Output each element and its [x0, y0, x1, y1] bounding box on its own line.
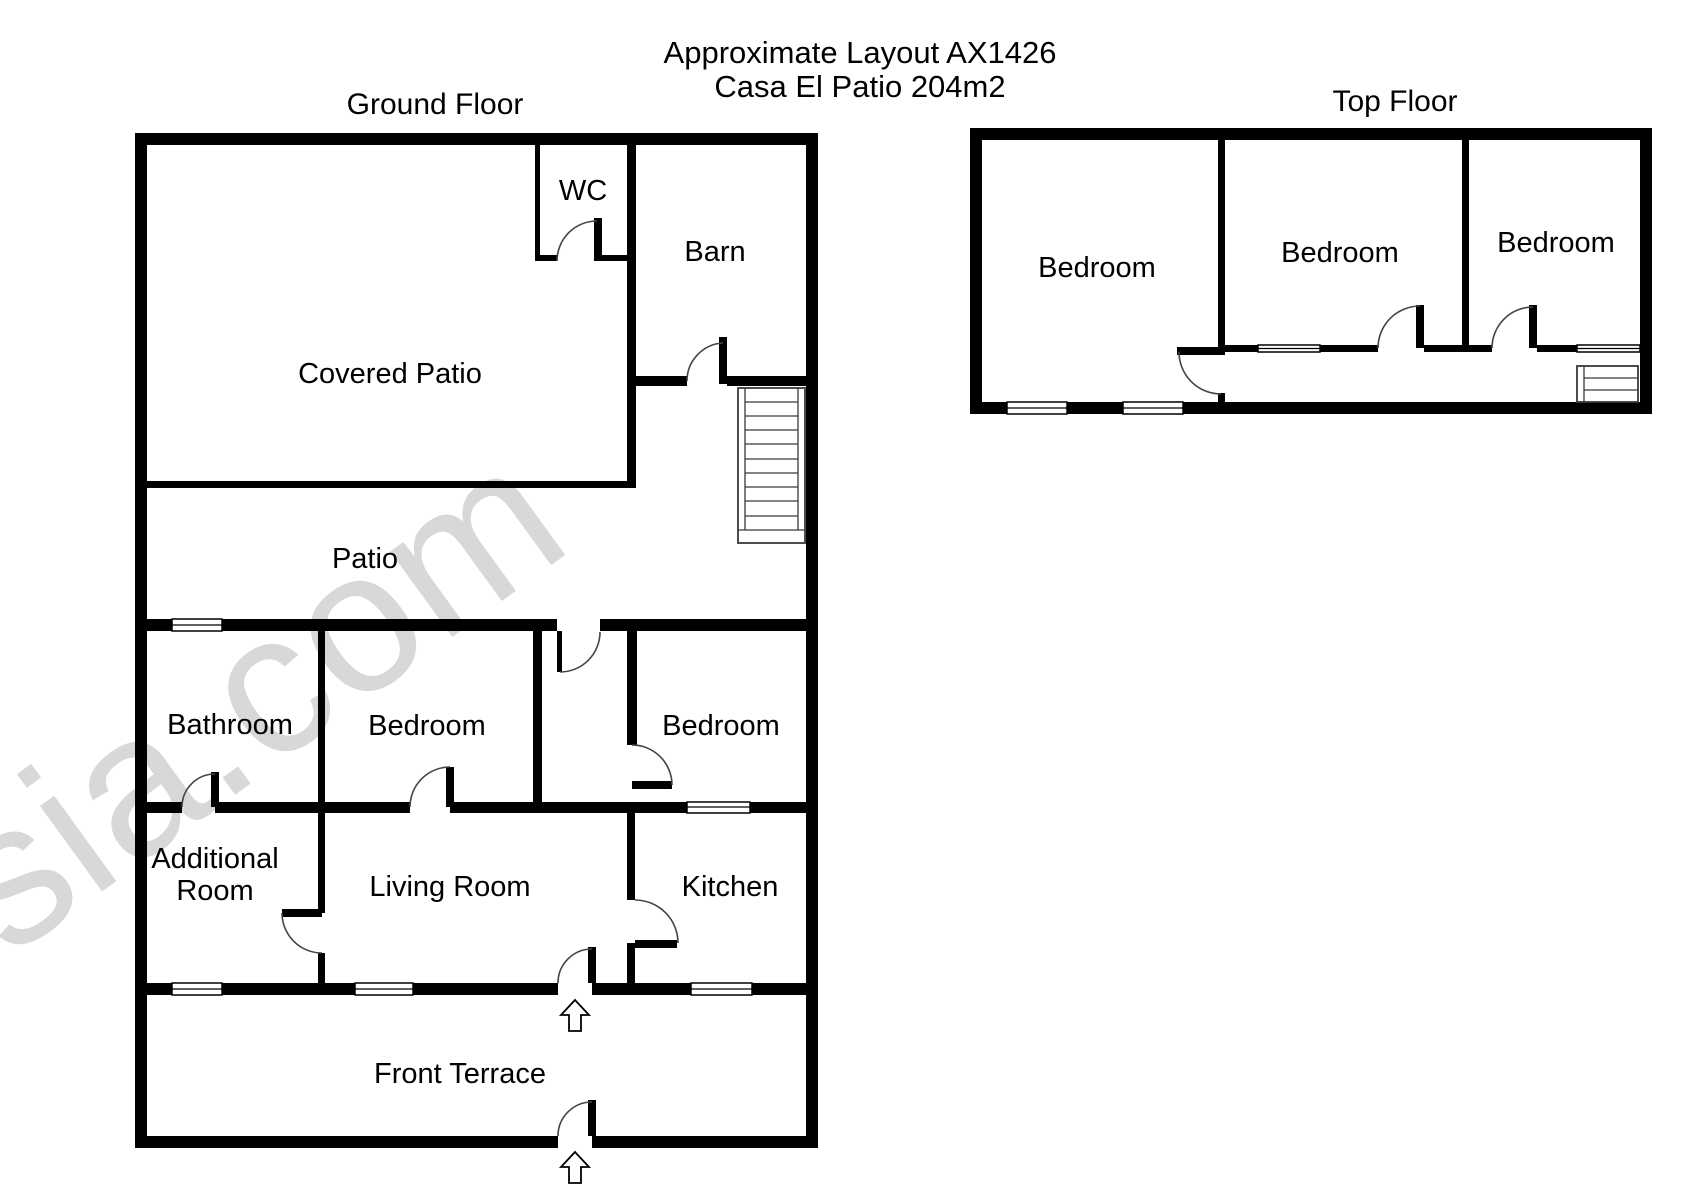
wall-segment: [636, 376, 687, 386]
room-label-patio: Patio: [332, 543, 398, 575]
terrace-entrance-arrow-icon: [561, 1000, 589, 1031]
wall-segment: [318, 953, 325, 983]
wall-segment: [147, 802, 182, 813]
top-floor-plan: Top Floor: [970, 85, 1652, 414]
ground-floor-title: Ground Floor: [347, 88, 524, 121]
room-label-bathroom: Bathroom: [167, 709, 293, 741]
door-leaf: [1529, 305, 1537, 348]
top-floor-inner-walls: [1177, 140, 1577, 402]
room-label-bedroom-1: Bedroom: [368, 710, 486, 742]
wall-segment: [222, 983, 355, 995]
door-leaf: [446, 767, 454, 807]
ground-floor-staircase: [738, 388, 805, 543]
wall-segment: [970, 128, 982, 414]
bedroom1-door-arc: [410, 767, 450, 807]
top-bedroom1-door-arc: [1179, 352, 1221, 394]
patio-hall-door-arc: [560, 632, 600, 672]
door-leaf: [635, 940, 677, 948]
wall-segment: [600, 619, 818, 631]
top-bedroom3-door-arc: [1492, 307, 1533, 348]
room-label-top-bedroom-3: Bedroom: [1497, 227, 1615, 259]
door-leaf: [632, 781, 672, 789]
window: [1123, 402, 1183, 414]
wall-segment: [535, 255, 557, 261]
wall-segment: [1320, 345, 1378, 352]
room-label-top-bedroom-2: Bedroom: [1281, 237, 1399, 269]
floorplan-canvas: unspoiltandalusia.com Approximate Layout…: [0, 0, 1696, 1200]
page-title-line2: Casa El Patio 204m2: [714, 69, 1005, 104]
wall-segment: [450, 802, 687, 813]
wall-segment: [970, 128, 1652, 140]
wall-segment: [318, 631, 325, 812]
wall-segment: [318, 813, 325, 913]
door-leaf: [211, 772, 219, 807]
room-label-kitchen: Kitchen: [682, 871, 779, 903]
wall-segment: [627, 631, 637, 745]
wall-segment: [752, 983, 818, 995]
window: [1577, 345, 1640, 352]
wall-segment: [1469, 345, 1492, 352]
additional-room-door-arc: [282, 913, 322, 953]
wall-segment: [135, 133, 147, 1148]
wall-segment: [135, 983, 172, 995]
wall-segment: [222, 619, 557, 631]
wall-segment: [1183, 402, 1652, 414]
entrance-door-arc: [558, 1102, 592, 1136]
wall-segment: [1067, 402, 1123, 414]
room-label-additional-room-line1: Additional: [151, 843, 278, 875]
window: [687, 802, 750, 813]
bedroom2-door-arc: [632, 745, 672, 785]
wall-segment: [1462, 140, 1469, 352]
room-label-barn: Barn: [684, 236, 745, 268]
wall-segment: [1640, 128, 1652, 414]
wall-segment: [627, 145, 636, 488]
room-label-living-room: Living Room: [369, 871, 530, 903]
wall-segment: [147, 481, 627, 488]
door-leaf: [557, 631, 562, 672]
top-floor-staircase: [1577, 366, 1638, 402]
wall-segment: [627, 813, 635, 900]
wall-segment: [413, 983, 558, 995]
door-leaf: [588, 947, 596, 983]
wall-segment: [135, 133, 818, 145]
window: [1258, 345, 1320, 352]
room-label-wc: WC: [559, 175, 607, 207]
door-leaf: [719, 337, 727, 384]
wall-segment: [215, 802, 410, 813]
wall-segment: [627, 943, 635, 983]
room-label-bedroom-2: Bedroom: [662, 710, 780, 742]
barn-door-arc: [687, 343, 723, 381]
door-leaf: [1416, 305, 1424, 348]
floorplan-page: unspoiltandalusia.com Approximate Layout…: [0, 0, 1696, 1200]
door-leaf: [588, 1100, 596, 1136]
room-label-top-bedroom-1: Bedroom: [1038, 252, 1156, 284]
page-title-line1: Approximate Layout AX1426: [664, 35, 1057, 70]
main-entrance-arrow-icon: [561, 1152, 589, 1183]
window: [691, 983, 752, 995]
wall-segment: [135, 1136, 558, 1148]
window: [172, 983, 222, 995]
wall-segment: [592, 983, 691, 995]
top-floor-title: Top Floor: [1332, 85, 1457, 118]
door-leaf: [594, 218, 602, 261]
wall-segment: [1218, 140, 1225, 355]
wall-segment: [592, 1136, 818, 1148]
wall-segment: [535, 145, 540, 257]
wall-segment: [727, 376, 806, 386]
window: [1007, 402, 1067, 414]
wall-segment: [602, 255, 627, 261]
door-leaf: [1177, 347, 1221, 355]
wall-segment: [1424, 345, 1462, 352]
top-bedroom2-door-arc: [1378, 306, 1420, 348]
terrace-door-arc: [558, 949, 592, 983]
wall-segment: [135, 619, 172, 631]
window: [172, 619, 222, 631]
wall-segment: [533, 631, 542, 812]
wall-segment: [806, 133, 818, 1148]
door-leaf: [282, 909, 322, 917]
wall-segment: [1225, 345, 1258, 352]
room-label-additional-room-line2: Room: [176, 875, 253, 907]
wall-segment: [970, 402, 1007, 414]
wc-door-arc: [557, 221, 597, 261]
room-label-covered-patio: Covered Patio: [298, 358, 482, 390]
window: [355, 983, 413, 995]
wall-segment: [1537, 345, 1577, 352]
kitchen-door-arc: [635, 900, 678, 943]
room-label-front-terrace: Front Terrace: [374, 1058, 546, 1090]
wall-segment: [750, 802, 806, 813]
